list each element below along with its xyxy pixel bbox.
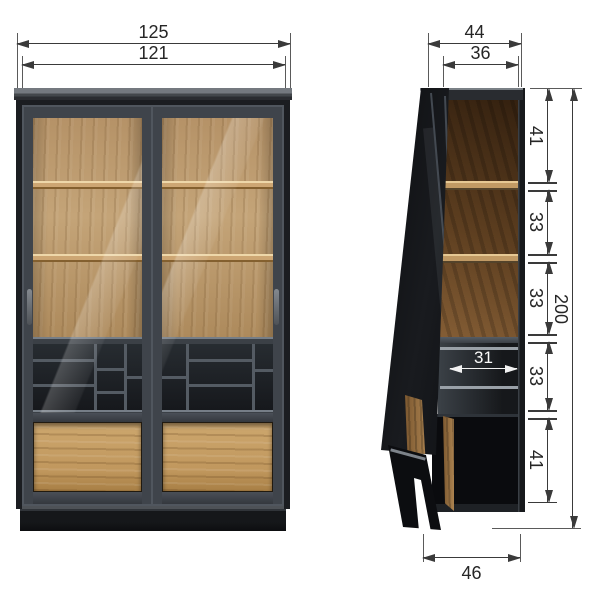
arrowhead-icon: [505, 365, 518, 373]
drawer-runner-rail: [440, 386, 519, 389]
pigeonhole-divider: [189, 384, 252, 387]
left-door-mid-rail: [33, 413, 142, 422]
dim-label: 33: [527, 366, 545, 386]
pigeonhole-divider: [162, 376, 186, 379]
front-plinth: [20, 509, 286, 531]
pigeonhole-divider: [97, 368, 124, 371]
dim-total-height: 200: [572, 89, 573, 528]
arrowhead-icon: [509, 40, 522, 48]
front-view: [0, 0, 310, 600]
right-shelf-1: [162, 181, 273, 189]
pigeonhole-divider: [189, 359, 252, 362]
front-left-sliding-door: [22, 105, 153, 506]
pigeonhole-divider: [33, 359, 94, 362]
arrowhead-icon: [508, 554, 521, 562]
right-interior-back-panel: [162, 118, 273, 337]
front-top-panel: [14, 88, 292, 100]
arrowhead-icon: [422, 554, 435, 562]
dim-side-inner-depth: 36: [443, 64, 518, 65]
arrowhead-icon: [273, 61, 286, 69]
arrowhead-icon: [545, 341, 553, 354]
right-compartment-top-divider: [162, 337, 273, 344]
right-door-bottom-rail: [162, 492, 273, 504]
arrowhead-icon: [570, 88, 578, 101]
pigeonhole-divider: [252, 344, 255, 410]
arrowhead-icon: [545, 261, 553, 274]
arrowhead-icon: [16, 40, 29, 48]
dim-label: 46: [461, 564, 481, 582]
right-pigeonhole-area: [162, 344, 273, 410]
arrowhead-icon: [545, 490, 553, 503]
extension-line: [492, 528, 581, 530]
dim-label: 41: [527, 125, 545, 145]
dim-label: 36: [470, 44, 490, 62]
right-drawer-front: [162, 422, 273, 492]
left-shelf-2: [33, 254, 142, 262]
arrowhead-icon: [545, 88, 553, 101]
dim-label: 31: [474, 349, 493, 366]
dim-interior-depth: 31: [450, 368, 517, 369]
arrowhead-icon: [545, 170, 553, 183]
arrowhead-icon: [570, 516, 578, 529]
arrowhead-icon: [442, 61, 455, 69]
pigeonhole-divider: [33, 384, 94, 387]
side-shelf-1: [438, 181, 521, 190]
dim-height-segment-3: 33: [547, 262, 548, 334]
dim-label: 41: [527, 450, 545, 470]
arrowhead-icon: [545, 189, 553, 202]
dim-label: 121: [138, 44, 168, 62]
pigeonhole-divider: [97, 391, 124, 394]
dim-label: 33: [527, 288, 545, 308]
arrowhead-icon: [545, 398, 553, 411]
dim-height-segment-1: 41: [547, 89, 548, 182]
left-pigeonhole-area: [33, 344, 142, 410]
dim-front-inner-width: 121: [22, 64, 285, 65]
arrowhead-icon: [449, 365, 462, 373]
left-door-glass: [33, 118, 142, 413]
dim-base-depth: 46: [423, 557, 520, 558]
arrowhead-icon: [506, 61, 519, 69]
pigeonhole-divider: [94, 344, 97, 410]
pigeonhole-divider: [255, 369, 273, 372]
arrowhead-icon: [21, 61, 34, 69]
right-door-mid-rail: [162, 413, 273, 422]
dim-height-segment-5: 41: [547, 418, 548, 502]
left-door-handle: [27, 289, 32, 325]
side-bottom-edge: [432, 504, 521, 512]
side-back-edge: [518, 88, 525, 512]
arrowhead-icon: [545, 242, 553, 255]
dim-label: 44: [464, 23, 484, 41]
dim-height-segment-2: 33: [547, 190, 548, 254]
left-door-bottom-rail: [33, 492, 142, 504]
arrowhead-icon: [427, 40, 440, 48]
dim-label: 125: [138, 23, 168, 41]
arrowhead-icon: [278, 40, 291, 48]
right-door-glass: [162, 118, 273, 413]
pigeonhole-divider: [186, 344, 189, 410]
dim-height-segment-4: 33: [547, 342, 548, 410]
right-door-handle: [274, 289, 279, 325]
compartment-top-lip: [438, 337, 521, 343]
dim-label: 33: [527, 212, 545, 232]
left-compartment-top-divider: [33, 337, 142, 344]
front-right-sliding-door: [151, 105, 284, 506]
diagram-canvas: 125 121 44 36 41 33 33 33 41: [0, 0, 600, 600]
pigeonhole-divider: [127, 376, 142, 379]
right-shelf-2: [162, 254, 273, 262]
left-drawer-front: [33, 422, 142, 492]
left-interior-back-panel: [33, 118, 142, 337]
left-shelf-1: [33, 181, 142, 189]
arrowhead-icon: [545, 417, 553, 430]
side-shelf-2: [438, 254, 521, 263]
dim-label: 200: [552, 293, 570, 323]
